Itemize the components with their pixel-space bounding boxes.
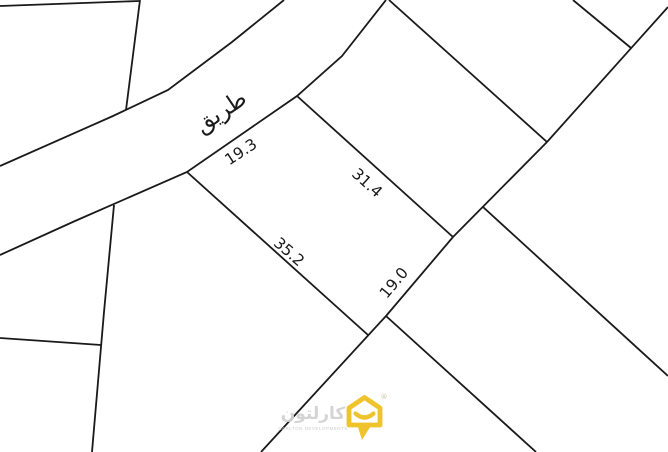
road-lower-edge-line <box>0 0 386 255</box>
road-label: طريق <box>190 85 251 138</box>
plot-side-ne-line <box>297 96 453 237</box>
topleft-vertical-line <box>126 0 140 110</box>
logo-tail <box>357 424 372 440</box>
left-vertical-boundary-line <box>92 205 114 452</box>
east-branch-boundary-line <box>483 207 668 376</box>
topright-boundary-line <box>573 0 631 48</box>
south-boundary-extension-line <box>261 316 386 452</box>
dimension-label-frontage: 19.3 <box>222 135 261 169</box>
southeast-boundary-line <box>386 316 536 452</box>
logo-smile <box>356 414 374 418</box>
plot-map: طريق 19.3 31.4 35.2 19.0 كارلتون CARLTON… <box>0 0 668 452</box>
northeast-strip-left-line <box>389 0 547 142</box>
registered-trademark-icon: ® <box>381 393 388 401</box>
dimension-label-southeast: 19.0 <box>376 264 412 302</box>
watermark-logo-speech-bubble-house-icon <box>349 398 380 441</box>
topleft-boundary-line <box>0 1 139 6</box>
northeast-strip-right-line <box>547 7 668 142</box>
left-horizontal-boundary-line <box>0 338 101 345</box>
watermark-brand-arabic: كارلتون <box>281 404 346 424</box>
watermark-brand-caption: CARLTON DEVELOPMENTS <box>278 426 348 431</box>
watermark: كارلتون CARLTON DEVELOPMENTS ® <box>278 393 387 440</box>
logo-house-outline <box>349 398 380 426</box>
map-canvas: طريق 19.3 31.4 35.2 19.0 كارلتون CARLTON… <box>0 0 668 452</box>
